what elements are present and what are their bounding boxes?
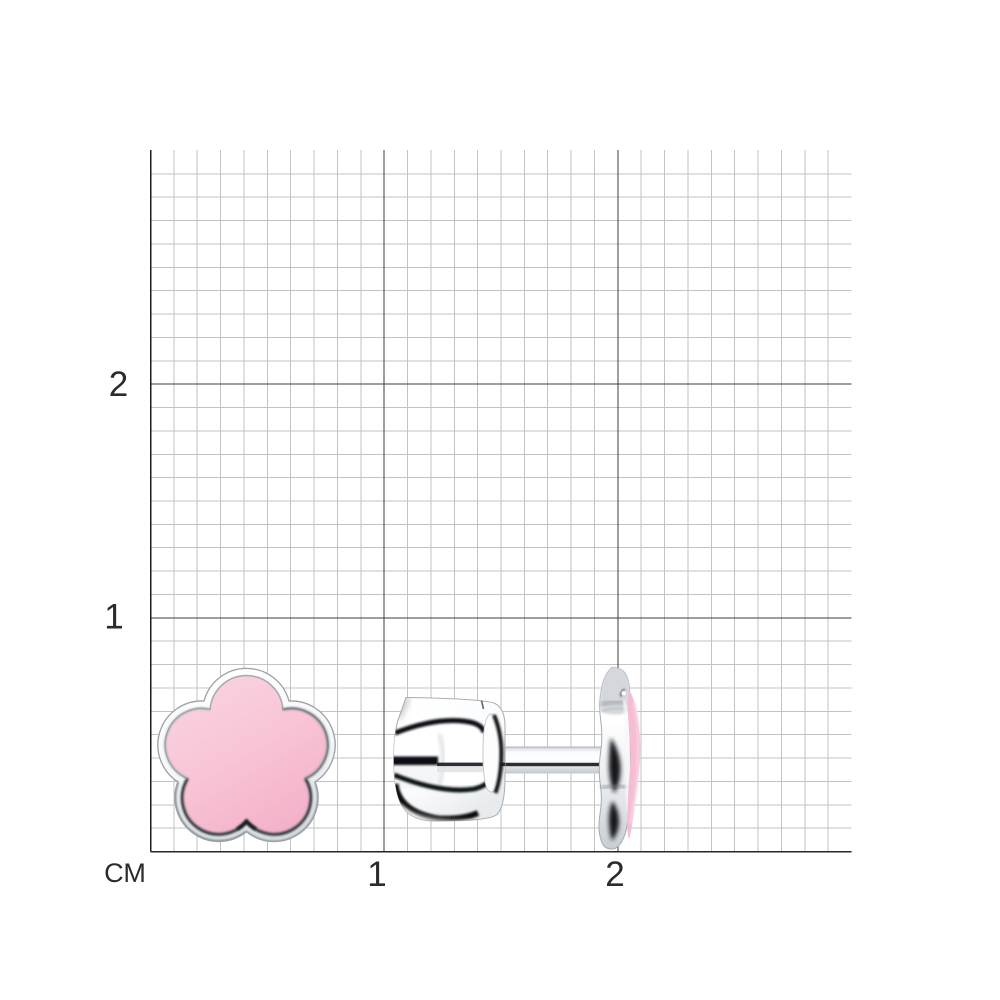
svg-text:2: 2 [605, 855, 624, 894]
svg-text:1: 1 [104, 598, 123, 637]
svg-text:1: 1 [367, 855, 386, 894]
svg-text:2: 2 [109, 365, 128, 404]
svg-text:СМ: СМ [104, 858, 146, 888]
